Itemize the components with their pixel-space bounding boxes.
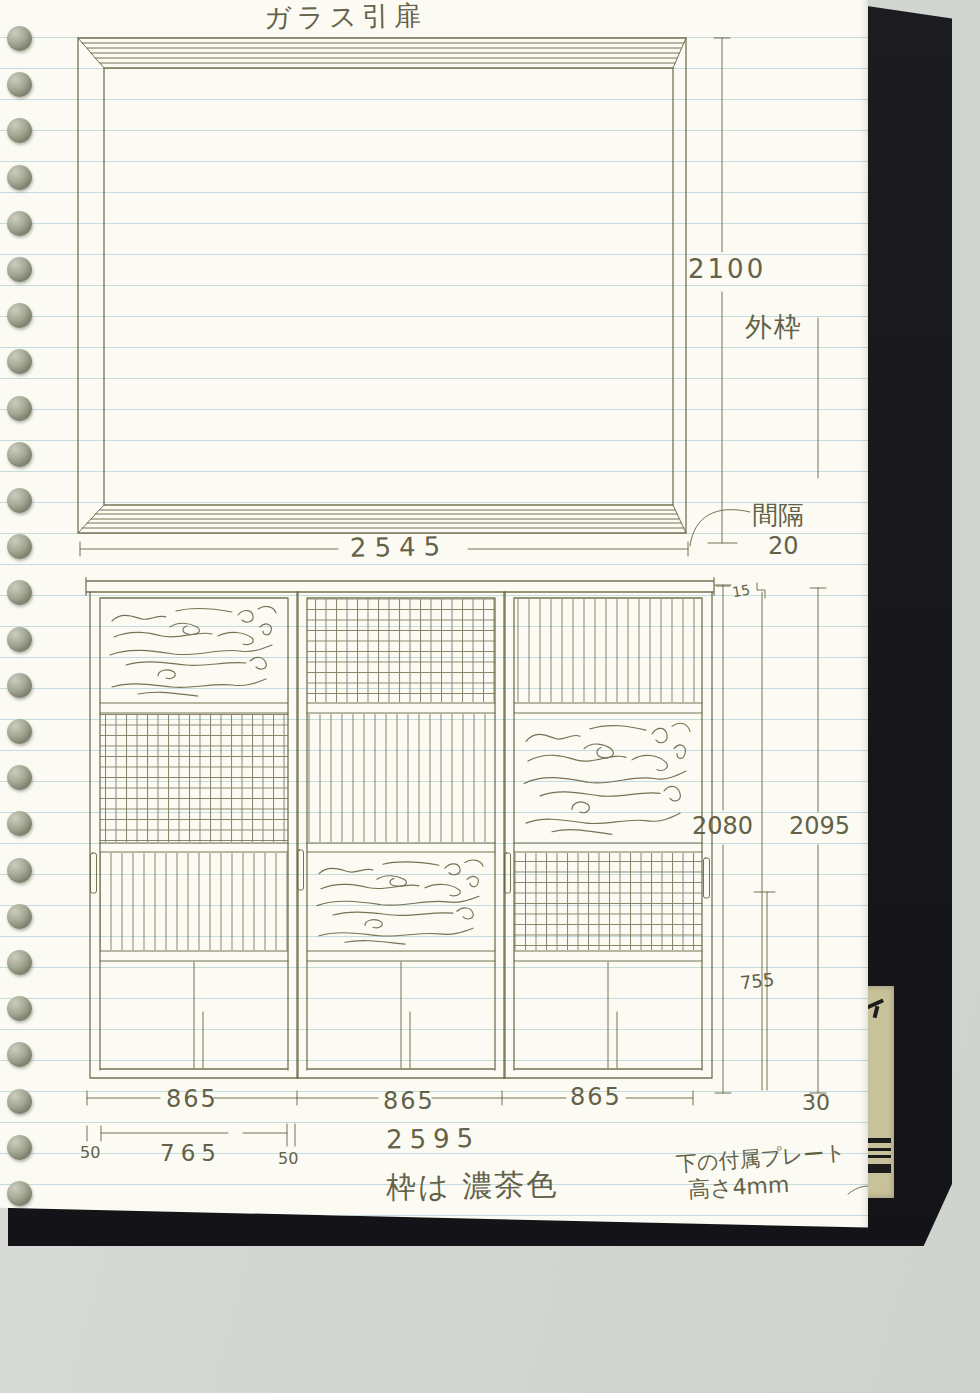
page-title: ガラス引扉 xyxy=(264,0,426,33)
binder-ring xyxy=(7,1089,32,1114)
dimension-2545: 2545 xyxy=(80,531,688,563)
dim-30-label: 30 xyxy=(802,1090,830,1115)
binder-ring xyxy=(7,627,32,652)
door-right-grid-panel xyxy=(514,853,702,950)
dim-765-label: 765 xyxy=(160,1140,222,1166)
sketch-svg: ガラス引扉 2100 外枠 間隔 20 2545 xyxy=(0,0,868,1232)
binder-ring xyxy=(7,996,32,1021)
door-right-grain-panel xyxy=(524,723,690,834)
binder-ring xyxy=(7,118,32,143)
bottom-dimensions: 865 865 865 50 765 50 2595 xyxy=(80,1083,693,1168)
door-middle-vline-panel xyxy=(307,714,495,842)
binder-ring xyxy=(7,950,32,975)
door-right xyxy=(504,592,712,1078)
binder-ring xyxy=(7,1181,32,1206)
binder-ring xyxy=(7,488,32,513)
door-right-vline-panel xyxy=(514,599,702,702)
gap-callout: 間隔 20 xyxy=(690,500,804,560)
binder-ring xyxy=(7,811,32,836)
gap-value: 20 xyxy=(768,532,799,560)
note-plate-line2: 高さ4mm xyxy=(687,1172,790,1202)
binder-ring xyxy=(7,26,32,51)
door-left-handle xyxy=(91,853,97,893)
door-left-vline-panel xyxy=(100,853,288,950)
door-right-edge-handle xyxy=(704,858,710,898)
label-mark xyxy=(873,1006,880,1019)
dim-755-label: 755 xyxy=(739,969,775,993)
dim-2080-label: 2080 xyxy=(692,812,753,840)
binder-ring xyxy=(7,1042,32,1067)
dim-865-middle: 865 xyxy=(383,1087,435,1115)
door-middle-grid-panel xyxy=(307,599,495,702)
lower-right-dimensions: 15 2080 2095 755 30 xyxy=(692,581,850,1115)
dim-2095-label: 2095 xyxy=(789,812,850,840)
dim-2100-label: 2100 xyxy=(688,254,766,284)
binder-ring xyxy=(7,673,32,698)
door-middle-bottom-divider xyxy=(401,962,410,1068)
binder-ring xyxy=(7,72,32,97)
dim-2545-label: 2545 xyxy=(350,531,449,563)
note-frame-color: 枠は 濃茶色 xyxy=(385,1166,559,1204)
binder-ring xyxy=(7,904,32,929)
outer-frame-label: 外枠 xyxy=(745,311,803,342)
dim-2595-label: 2595 xyxy=(386,1123,481,1155)
door-middle-grain-panel xyxy=(317,860,483,944)
door-left xyxy=(90,592,298,1078)
sliding-doors-drawing xyxy=(86,578,714,1078)
dim-865-left: 865 xyxy=(166,1085,218,1113)
outer-frame-drawing xyxy=(78,38,686,533)
door-right-bottom-divider xyxy=(608,962,617,1068)
binder-ring xyxy=(7,257,32,282)
bottom-rails xyxy=(82,510,684,528)
binder-ring xyxy=(7,765,32,790)
note-plate-line1: 下の付属プレート xyxy=(675,1140,846,1176)
dim-50-left: 50 xyxy=(80,1143,100,1162)
binding-holes xyxy=(0,0,44,1230)
binder-ring xyxy=(7,719,32,744)
binder-ring xyxy=(7,165,32,190)
dim-50-right: 50 xyxy=(278,1149,298,1168)
binder-ring xyxy=(7,534,32,559)
binder-ring xyxy=(7,396,32,421)
binder-ring xyxy=(7,1135,32,1160)
dimension-2100: 2100 xyxy=(688,38,766,543)
binder-ring xyxy=(7,442,32,467)
dim-865-right: 865 xyxy=(570,1083,622,1111)
binder-ring xyxy=(7,858,32,883)
gap-label: 間隔 xyxy=(752,500,804,530)
binder-ring xyxy=(7,580,32,605)
top-rails xyxy=(82,43,684,63)
outer-frame-callout: 外枠 xyxy=(745,311,818,478)
door-middle xyxy=(297,592,505,1078)
notebook-page: ガラス引扉 2100 外枠 間隔 20 2545 xyxy=(0,0,868,1230)
door-left-bottom-divider xyxy=(194,962,203,1068)
binder-ring xyxy=(7,303,32,328)
door-left-grid-panel xyxy=(100,714,288,842)
binder-ring xyxy=(7,211,32,236)
dim-15-label: 15 xyxy=(731,581,751,600)
door-left-grain-panel xyxy=(110,606,276,696)
binder-ring xyxy=(7,349,32,374)
